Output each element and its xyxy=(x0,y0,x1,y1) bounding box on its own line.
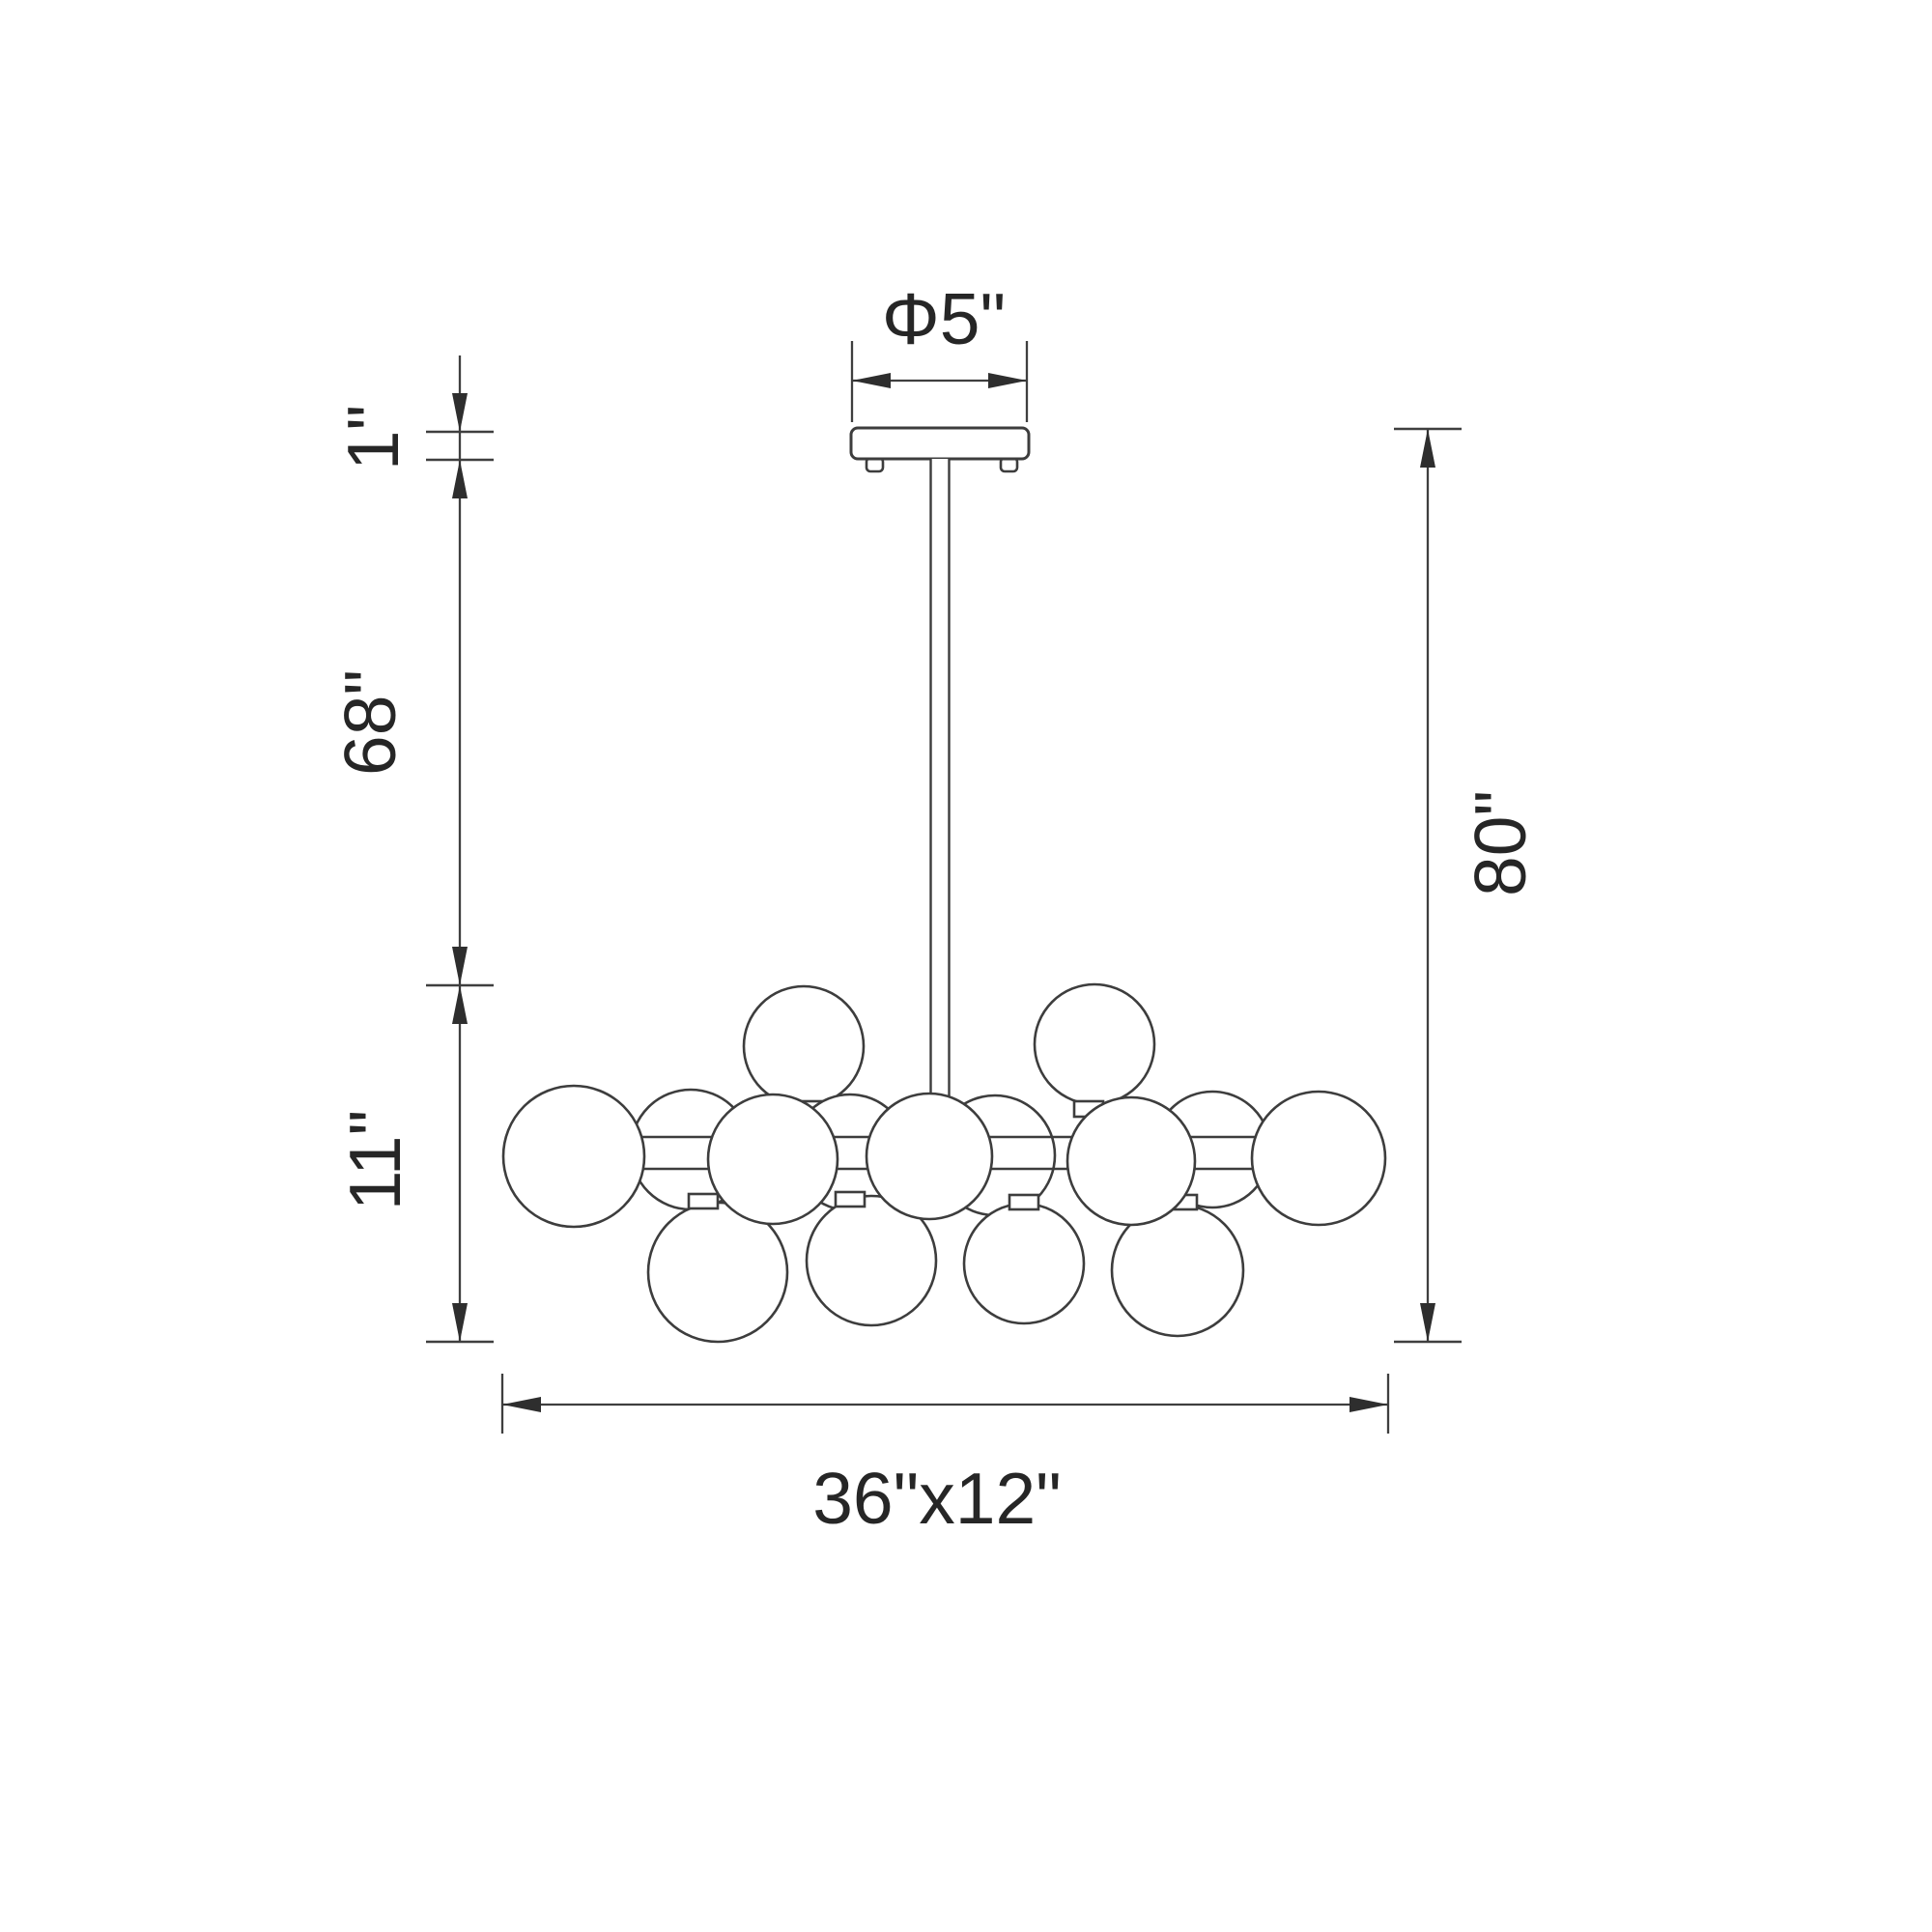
globe-top-left xyxy=(744,986,864,1106)
arrowhead-up xyxy=(1420,429,1435,468)
globe-bottom-3 xyxy=(964,1204,1084,1323)
globe-top-right xyxy=(1035,984,1154,1104)
label-canopy-height: 1" xyxy=(332,405,413,470)
arrowhead-left xyxy=(502,1397,541,1412)
globe-front-3 xyxy=(867,1094,992,1219)
arrowhead-down xyxy=(452,1303,468,1342)
arrowhead-down xyxy=(452,947,468,985)
canopy-plate xyxy=(851,428,1029,459)
socket-bottom-1 xyxy=(689,1194,718,1208)
label-body-height: 11" xyxy=(334,1110,415,1210)
arrowhead-down xyxy=(1420,1303,1435,1342)
arrowhead-up xyxy=(452,985,468,1024)
globe-front-4 xyxy=(1067,1097,1195,1225)
drawing-canvas: Φ5" 1" 68" 11" 80" 36"x12" xyxy=(0,0,1932,1932)
arrowhead-down xyxy=(452,393,468,432)
label-rod-length: 68" xyxy=(329,669,411,776)
globe-front-1 xyxy=(503,1086,644,1227)
globe-front-5 xyxy=(1252,1092,1385,1225)
dimension-overall-height: 80" xyxy=(1394,429,1541,1342)
rod-body xyxy=(931,459,949,1145)
globe-front-2 xyxy=(708,1094,838,1224)
label-body-footprint: 36"x12" xyxy=(812,1458,1062,1539)
arrowhead-left xyxy=(852,373,891,388)
socket-bottom-3 xyxy=(1009,1195,1038,1209)
dimension-canopy-diameter: Φ5" xyxy=(852,278,1027,422)
label-overall-height: 80" xyxy=(1460,790,1541,896)
arrowhead-up xyxy=(452,460,468,498)
dimension-drawing: Φ5" 1" 68" 11" 80" 36"x12" xyxy=(0,0,1932,1932)
dimension-body-footprint: 36"x12" xyxy=(502,1374,1388,1539)
arrowhead-right xyxy=(988,373,1027,388)
socket-bottom-2 xyxy=(836,1192,865,1207)
dimension-left-stack: 1" 68" 11" xyxy=(329,355,494,1342)
arrowhead-right xyxy=(1350,1397,1388,1412)
label-canopy-diameter: Φ5" xyxy=(882,278,1006,359)
hanging-rod xyxy=(931,459,950,1145)
